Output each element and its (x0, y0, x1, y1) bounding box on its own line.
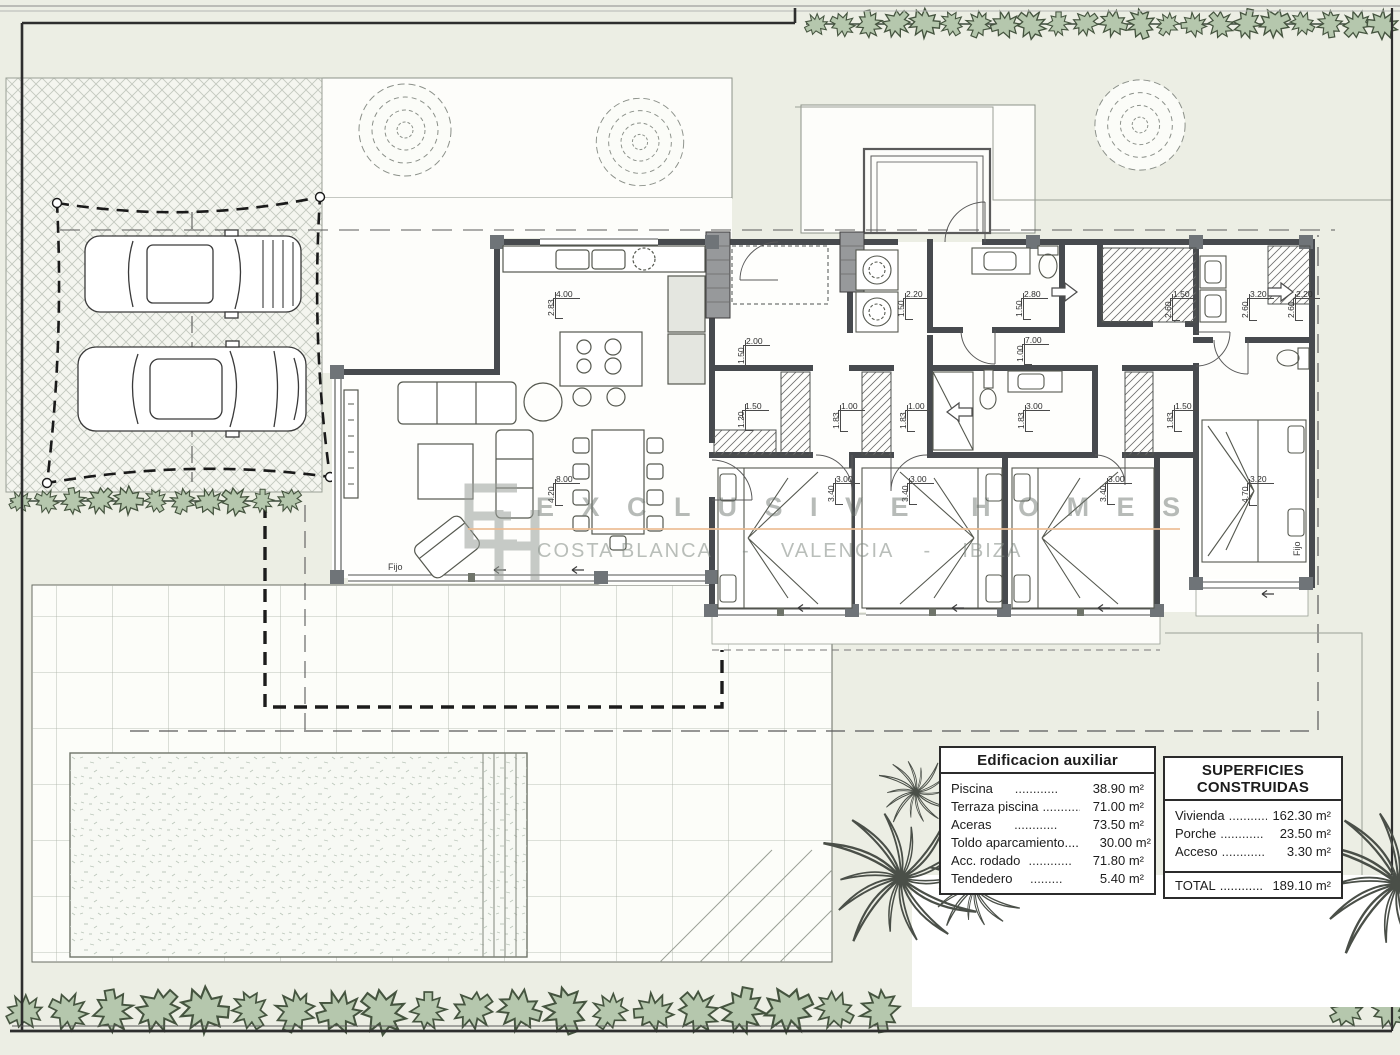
row-value: 73.50 m² (1080, 817, 1144, 833)
dimension-label: 1.20 (736, 411, 746, 428)
table-row: Toldo aparcamiento.... 30.00 m² (941, 834, 1154, 852)
row-label: Terraza piscina (951, 799, 1038, 815)
built-table-rows: Vivienda ............ 162.30 m² Porche .… (1165, 801, 1341, 866)
row-value: 5.40 m² (1080, 871, 1144, 887)
floor-plan-canvas: E X C L U S I V E H O M E S COSTA BLANCA… (0, 0, 1400, 1055)
row-value: 38.90 m² (1080, 781, 1144, 797)
row-dots: ............ (991, 817, 1080, 833)
row-label: Tendedero (951, 871, 1012, 887)
dimension-label: 1.83 (831, 412, 841, 429)
row-dots: ............ (1225, 808, 1267, 824)
table-row: Porche ............ 23.50 m² (1165, 825, 1341, 843)
auxiliary-areas-table: Edificacion auxiliar Piscina ...........… (939, 746, 1156, 895)
row-value: 30.00 m² (1087, 835, 1151, 851)
total-dots: ............ (1216, 878, 1267, 893)
table-row: Acceso ............ 3.30 m² (1165, 843, 1341, 861)
dimension-label: 2.60 (1286, 301, 1296, 318)
row-dots: ............ (1038, 799, 1080, 815)
row-dots: ............ (1216, 826, 1267, 842)
row-value: 23.50 m² (1267, 826, 1331, 842)
row-dots: ............ (1020, 853, 1080, 869)
table-row: Aceras ............ 73.50 m² (941, 816, 1154, 834)
plan-label: Fijo (1292, 541, 1302, 556)
total-label: TOTAL (1175, 878, 1216, 893)
row-dots: ............ (1218, 844, 1267, 860)
swimming-pool (70, 753, 527, 957)
auxiliary-table-rows: Piscina ............ 38.90 m² Terraza pi… (941, 774, 1154, 893)
table-row: Terraza piscina ............ 71.00 m² (941, 798, 1154, 816)
total-value: 189.10 m² (1267, 878, 1331, 893)
row-label: Vivienda (1175, 808, 1225, 824)
car-suv (85, 230, 301, 318)
dimension-label: 3.40 (1098, 485, 1108, 502)
table-row: Acc. rodado ............ 71.80 m² (941, 852, 1154, 870)
dimension-label: 2.83 (546, 299, 556, 316)
row-label: Toldo aparcamiento.... (951, 835, 1079, 851)
dimension-label: 1.50 (1014, 300, 1024, 317)
dimension-label: 2.60 (1240, 301, 1250, 318)
row-label: Acc. rodado (951, 853, 1020, 869)
row-label: Aceras (951, 817, 991, 833)
total-row: TOTAL ............ 189.10 m² (1165, 871, 1341, 897)
plan-label: Fijo (388, 562, 403, 572)
dimension-label: 1.50 (736, 347, 746, 364)
row-value: 3.30 m² (1267, 844, 1331, 860)
table-row: Piscina ............ 38.90 m² (941, 780, 1154, 798)
table-row: Vivienda ............ 162.30 m² (1165, 807, 1341, 825)
dimension-label: 4.70 (1240, 486, 1250, 503)
dimension-label: 1.50 (896, 300, 906, 317)
dimension-label: 1.83 (1165, 412, 1175, 429)
row-value: 71.00 m² (1080, 799, 1144, 815)
car-sedan (78, 341, 306, 437)
row-dots: ............ (993, 781, 1080, 797)
dimension-label: 4.20 (546, 486, 556, 503)
row-value: 71.80 m² (1080, 853, 1144, 869)
auxiliary-table-title: Edificacion auxiliar (941, 748, 1154, 774)
row-dots: ......... (1012, 871, 1080, 887)
dimension-label: 2.60 (1163, 301, 1173, 318)
dimension-label: 1.83 (1016, 412, 1026, 429)
row-value: 162.30 m² (1267, 808, 1331, 824)
row-label: Piscina (951, 781, 993, 797)
row-label: Acceso (1175, 844, 1218, 860)
built-table-title: SUPERFICIES CONSTRUIDAS (1165, 758, 1341, 801)
built-surfaces-table: SUPERFICIES CONSTRUIDAS Vivienda .......… (1163, 756, 1343, 899)
dimension-label: 1.00 (1015, 345, 1025, 362)
table-row: Tendedero ......... 5.40 m² (941, 870, 1154, 888)
dimension-label: 3.40 (826, 485, 836, 502)
dimension-label: 1.83 (898, 412, 908, 429)
row-label: Porche (1175, 826, 1216, 842)
dimension-label: 3.40 (900, 485, 910, 502)
